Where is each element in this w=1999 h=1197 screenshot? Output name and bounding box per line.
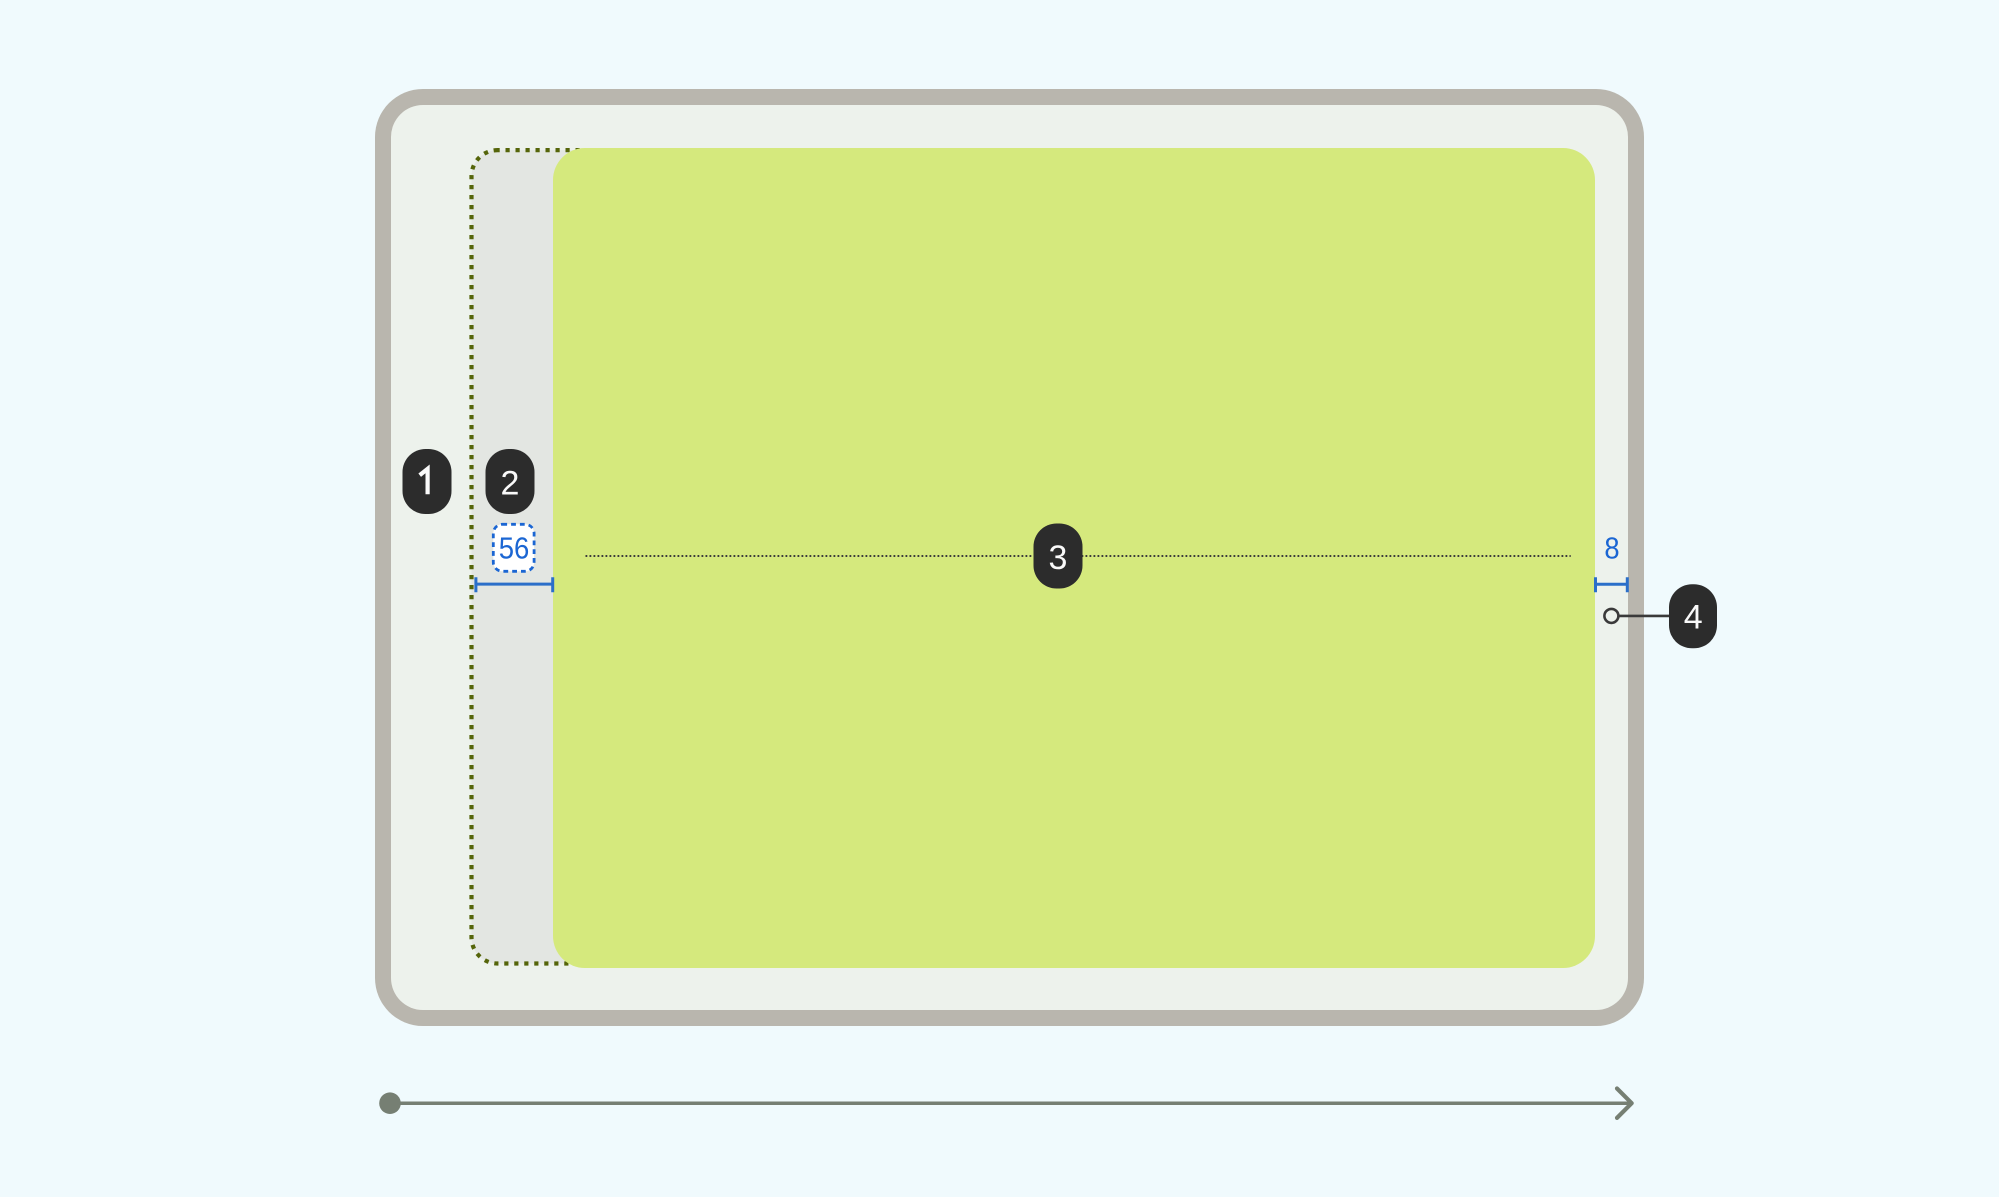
svg-text:56: 56 [499,531,530,566]
svg-text:4: 4 [1684,599,1703,637]
svg-text:2: 2 [501,465,520,503]
svg-text:3: 3 [1049,539,1068,577]
svg-text:8: 8 [1604,531,1619,566]
